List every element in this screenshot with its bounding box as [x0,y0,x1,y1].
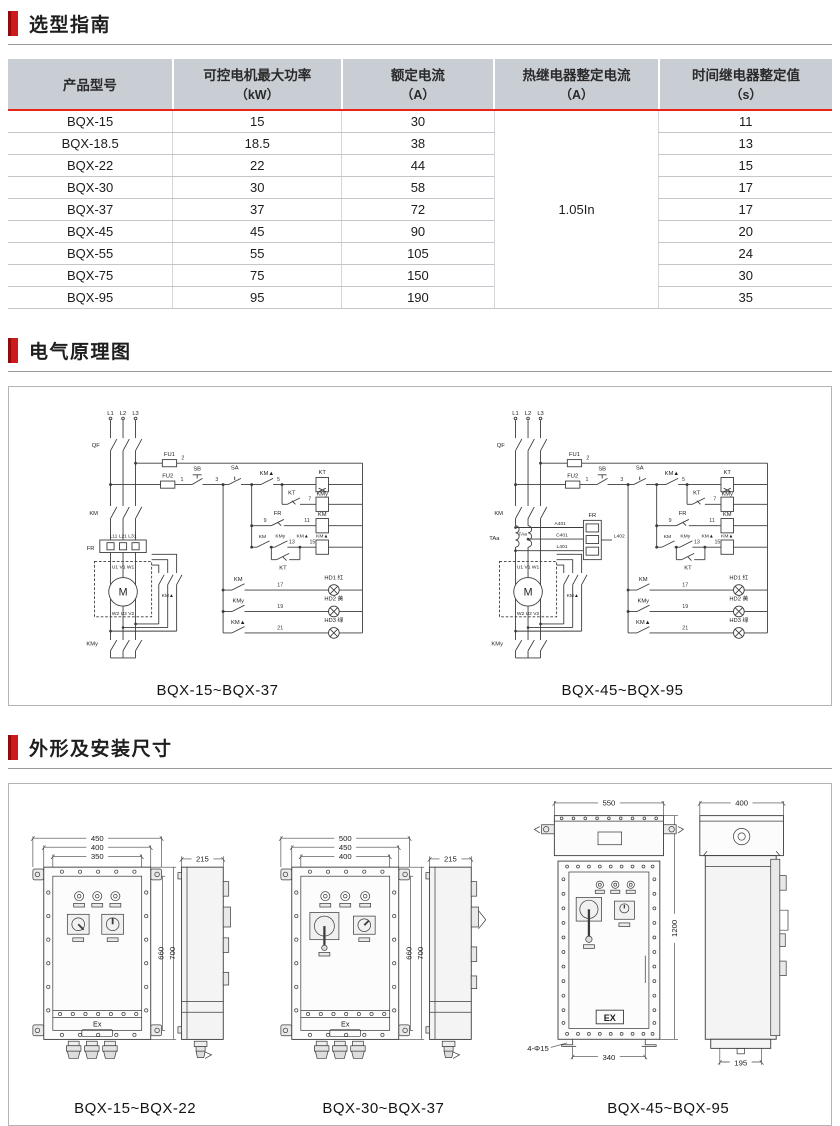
label-l1: L1 [512,411,518,417]
table-row: BQX-18.518.53813 [8,133,832,155]
label-kmd2: KM▲ [701,533,713,539]
label-qf: QF [92,443,101,449]
label-km-contact: KM [258,534,265,540]
label-n3: 3 [620,477,623,483]
side-view [426,867,486,1058]
label-sb: SB [193,466,201,472]
table-row: BQX-555510524 [8,243,832,265]
dim-340: 340 [603,1053,616,1062]
current-transformer-group [514,520,612,584]
label-fr-box: FR [588,513,596,519]
label-kmd2: KM▲ [296,533,308,539]
cell-model: BQX-37 [8,199,173,221]
side-gland [194,1041,211,1058]
dim-660: 660 [404,947,413,960]
dim-215: 215 [444,855,457,864]
label-hd1: HD1 红 [324,573,343,581]
dim-215: 215 [196,855,209,864]
label-n21: 21 [277,625,283,631]
label-l2: L2 [525,411,531,417]
label-kmd-motor: KM▲ [161,593,173,599]
schematic-figure-small: L1 L2 L3 QF FU1 2 FU2 1 SB 3 SA KM▲ 5 KT… [48,406,387,699]
label-n15: 15 [309,540,315,546]
section-header-schematic: 电气原理图 [8,335,832,372]
outline-drawing-2: 500 450 400 660 700 215 [270,820,497,1117]
label-kmd-motor: KM▲ [566,593,578,599]
label-km-coil: KM [318,512,327,518]
label-wuv: W2 U2 V2 [112,611,135,617]
label-sa: SA [231,465,239,471]
label-n2: 2 [181,456,184,462]
label-kt-contact: KT [288,490,296,496]
title-accent-bar [8,338,18,363]
cell-power: 55 [173,243,342,265]
label-kmy-contact: KMy [275,533,285,539]
label-taa2: TAa [518,532,527,538]
schematic-svg-small: L1 L2 L3 QF FU1 2 FU2 1 SB 3 SA KM▲ 5 KT… [48,406,387,674]
label-km-main: KM [494,511,503,517]
dim-500: 500 [339,834,352,843]
cell-time: 30 [659,265,832,287]
label-n7: 7 [713,497,716,503]
cell-current: 105 [342,243,494,265]
section-header-dimensions: 外形及安装尺寸 [8,732,832,769]
cell-time: 17 [659,199,832,221]
col-header-time: 时间继电器整定值（s） [659,59,832,110]
table-row: BQX-1515301.05In11 [8,110,832,133]
label-km-coil: KM [723,512,732,518]
label-n5: 5 [277,477,280,483]
label-kmy-coil: KMy [316,491,328,497]
label-fu2: FU2 [162,473,173,479]
dim-700: 700 [168,947,177,960]
dim-350: 350 [91,852,104,861]
schematic-figure-large: L1 L2 L3 QF FU1 2 FU2 1 SB 3 SA KM▲ 5 KT… [453,406,792,699]
ex-marking: EX [604,1013,616,1023]
front-view: Ex [281,867,410,1058]
cell-current: 44 [342,155,494,177]
label-n1: 1 [585,477,588,483]
dim-550: 550 [603,799,616,808]
catalog-page: 选型指南 产品型号 可控电机最大功率（kW） 额定电流（A） 热继电器整定电流（… [0,0,840,1126]
mounting-feet [562,1039,657,1046]
dim-660: 660 [156,947,165,960]
table-row: BQX-37377217 [8,199,832,221]
cell-time: 15 [659,155,832,177]
table-row: BQX-30305817 [8,177,832,199]
label-km-lamp: KM [234,577,243,583]
label-kt2: KT [684,565,692,571]
label-hd3: HD3 绿 [324,616,343,624]
cell-model: BQX-55 [8,243,173,265]
label-sa: SA [636,465,644,471]
label-n2: 2 [586,456,589,462]
cell-current: 30 [342,110,494,133]
label-l3: L3 [132,411,138,417]
dimension-panel: 450 400 350 660 700 215 [8,783,832,1126]
table-header-row: 产品型号 可控电机最大功率（kW） 额定电流（A） 热继电器整定电流（A） 时间… [8,59,832,110]
label-kt-contact: KT [693,490,701,496]
label-kmd-lamp: KM▲ [231,620,245,626]
label-kmd-contact: KM▲ [664,471,678,477]
cell-power: 45 [173,221,342,243]
label-c401: C401 [556,532,568,538]
label-kmy-lamp: KMy [232,599,244,605]
cell-power: 18.5 [173,133,342,155]
outline-caption-3: BQX-45~BQX-95 [518,1100,818,1117]
label-n21: 21 [682,625,688,631]
label-l401: L401 [556,544,567,550]
cell-power: 15 [173,110,342,133]
label-hd1: HD1 红 [729,573,748,581]
dim-195: 195 [735,1059,748,1068]
label-l1: L1 [107,411,113,417]
label-kmy-bottom: KMy [86,641,98,647]
cell-power: 95 [173,287,342,309]
control-wires [514,460,767,639]
cell-model: BQX-18.5 [8,133,173,155]
cable-glands [66,1041,117,1058]
cable-glands [314,1041,365,1058]
title-accent-bar [8,735,18,760]
dim-700: 700 [416,947,425,960]
label-n1: 1 [180,477,183,483]
label-kmy-coil: KMy [721,491,733,497]
side-gland [442,1041,459,1058]
label-fu2: FU2 [567,473,578,479]
cell-time: 35 [659,287,832,309]
table-row: BQX-45459020 [8,221,832,243]
dim-400: 400 [339,852,352,861]
side-view [700,816,788,1054]
label-n9: 9 [263,518,266,524]
cell-time: 20 [659,221,832,243]
label-kt-coil: KT [723,470,731,476]
label-motor: M [523,586,532,598]
label-uvw: U1 V1 W1 [112,565,135,571]
label-kt-coil: KT [318,470,326,476]
cell-time: 11 [659,110,832,133]
label-n19: 19 [682,604,688,610]
table-row: BQX-757515030 [8,265,832,287]
label-wuv: W2 U2 V2 [517,611,540,617]
cell-current: 72 [342,199,494,221]
front-view: Ex [33,867,162,1058]
label-kmy-contact: KMy [680,533,690,539]
cell-model: BQX-22 [8,155,173,177]
cell-model: BQX-75 [8,265,173,287]
label-km-lamp: KM [639,577,648,583]
label-uvw: U1 V1 W1 [517,565,540,571]
label-n11: 11 [304,518,310,524]
schematic-panel: L1 L2 L3 QF FU1 2 FU2 1 SB 3 SA KM▲ 5 KT… [8,386,832,706]
section-title-selection: 选型指南 [29,10,111,37]
power-lines [514,417,547,584]
cell-power: 30 [173,177,342,199]
dim-450: 450 [91,834,104,843]
label-kmy-lamp: KMy [637,599,649,605]
title-accent-bar [8,11,18,36]
label-l3: L3 [537,411,543,417]
label-l2: L2 [120,411,126,417]
label-taa: TAa [489,536,500,542]
cell-time: 17 [659,177,832,199]
cell-current: 58 [342,177,494,199]
label-kt2: KT [279,565,287,571]
dim-1200: 1200 [670,920,679,937]
schematic-labels: L1 L2 L3 QF FU1 2 FU2 1 SB 3 SA KM▲ 5 KT… [489,411,748,647]
cell-power: 75 [173,265,342,287]
label-n13: 13 [289,540,295,546]
table-row: BQX-22224415 [8,155,832,177]
label-n11: 11 [709,518,715,524]
section-title-dimensions: 外形及安装尺寸 [29,734,173,761]
side-view [178,867,231,1058]
label-fu1: FU1 [164,452,175,458]
mounting-holes-note: 4-Φ15 [527,1044,549,1053]
label-n17: 17 [277,582,283,588]
label-fr-box: FR [86,546,94,552]
cell-model: BQX-95 [8,287,173,309]
schematic-svg-large: L1 L2 L3 QF FU1 2 FU2 1 SB 3 SA KM▲ 5 KT… [453,406,792,674]
cell-current: 150 [342,265,494,287]
label-n5: 5 [682,477,685,483]
label-km-main: KM [89,511,98,517]
outline-drawing-3: 550 400 1200 340 195 4-Φ15 [518,792,818,1117]
cell-current: 38 [342,133,494,155]
label-a401: A401 [554,521,566,527]
label-kmd-lamp: KM▲ [636,620,650,626]
label-hd2: HD2 黄 [324,595,343,603]
col-header-model: 产品型号 [8,59,173,110]
label-fr-contact: FR [678,511,686,517]
dim-400: 400 [91,843,104,852]
control-wires [109,460,362,639]
label-hd3: HD3 绿 [729,616,748,624]
outline-svg-1: 450 400 350 660 700 215 [22,820,249,1092]
selection-table: 产品型号 可控电机最大功率（kW） 额定电流（A） 热继电器整定电流（A） 时间… [8,59,832,309]
outline-svg-3: 550 400 1200 340 195 4-Φ15 [518,792,818,1092]
dim-400: 400 [735,799,748,808]
power-lines [109,417,142,540]
cell-thermal-merged: 1.05In [494,110,659,309]
outline-drawing-1: 450 400 350 660 700 215 [22,820,249,1117]
table-row: BQX-959519035 [8,287,832,309]
outline-svg-2: 500 450 400 660 700 215 [270,820,497,1092]
cell-current: 90 [342,221,494,243]
label-n7: 7 [308,497,311,503]
cell-time: 13 [659,133,832,155]
col-header-current: 额定电流（A） [342,59,494,110]
outline-caption-2: BQX-30~BQX-37 [270,1100,497,1117]
col-header-thermal: 热继电器整定电流（A） [494,59,659,110]
label-n19: 19 [277,604,283,610]
label-l11-l21-l31: L11 L21 L31 [109,533,136,539]
cell-current: 190 [342,287,494,309]
label-kmd-coil: KM▲ [721,533,733,539]
label-motor: M [118,586,127,598]
label-kmd-coil: KM▲ [316,533,328,539]
label-km-contact: KM [663,534,670,540]
label-kmy-bottom: KMy [491,641,503,647]
schematic-caption-small: BQX-15~BQX-37 [48,682,387,699]
section-title-schematic: 电气原理图 [29,337,132,364]
label-kmd-contact: KM▲ [259,471,273,477]
cell-power: 22 [173,155,342,177]
ex-marking: Ex [93,1020,102,1029]
outline-caption-1: BQX-15~BQX-22 [22,1100,249,1117]
col-header-power: 可控电机最大功率（kW） [173,59,342,110]
motor-branch [499,554,587,658]
cell-model: BQX-45 [8,221,173,243]
label-n9: 9 [668,518,671,524]
front-view: EX [535,816,684,1047]
cell-power: 37 [173,199,342,221]
label-n15: 15 [714,540,720,546]
cell-model: BQX-30 [8,177,173,199]
label-l402: L402 [614,533,625,539]
label-hd2: HD2 黄 [729,595,748,603]
ex-marking: Ex [341,1020,350,1029]
label-fu1: FU1 [569,452,580,458]
dim-450: 450 [339,843,352,852]
label-qf: QF [497,443,506,449]
cell-time: 24 [659,243,832,265]
label-n3: 3 [215,477,218,483]
label-sb: SB [598,466,606,472]
cell-model: BQX-15 [8,110,173,133]
label-n13: 13 [694,540,700,546]
schematic-caption-large: BQX-45~BQX-95 [453,682,792,699]
section-header-selection: 选型指南 [8,8,832,45]
label-fr-contact: FR [273,511,281,517]
label-n17: 17 [682,582,688,588]
